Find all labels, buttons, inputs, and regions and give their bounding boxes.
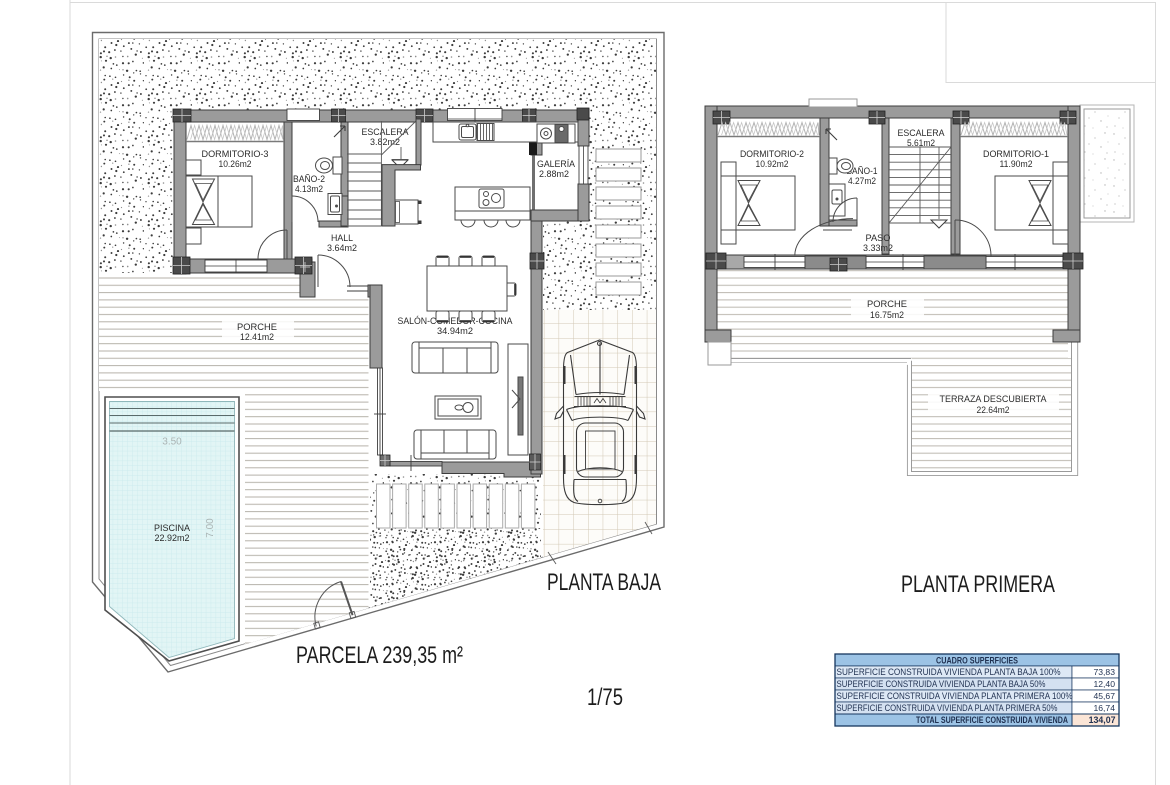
svg-text:12,40: 12,40 <box>1093 679 1115 689</box>
svg-text:22.92m2: 22.92m2 <box>155 533 190 543</box>
svg-text:SUPERFICIE CONSTRUIDA VIVIENDA: SUPERFICIE CONSTRUIDA VIVIENDA PLANTA PR… <box>837 691 1073 701</box>
svg-text:134,07: 134,07 <box>1089 715 1116 725</box>
svg-text:10.92m2: 10.92m2 <box>756 159 789 169</box>
svg-text:73,83: 73,83 <box>1093 667 1115 677</box>
svg-text:22.64m2: 22.64m2 <box>977 405 1010 415</box>
svg-text:3.33m2: 3.33m2 <box>863 243 893 253</box>
svg-text:SUPERFICIE CONSTRUIDA VIVIENDA: SUPERFICIE CONSTRUIDA VIVIENDA PLANTA PR… <box>837 703 1058 713</box>
svg-text:PORCHE: PORCHE <box>867 299 907 310</box>
svg-text:11.90m2: 11.90m2 <box>1000 159 1033 169</box>
svg-text:16.75m2: 16.75m2 <box>870 310 904 320</box>
svg-text:2.88m2: 2.88m2 <box>539 169 569 179</box>
svg-text:7.00: 7.00 <box>205 518 216 538</box>
svg-text:16,74: 16,74 <box>1093 703 1115 713</box>
svg-text:34.94m2: 34.94m2 <box>437 326 473 336</box>
svg-text:3.50: 3.50 <box>162 437 182 448</box>
svg-text:45,67: 45,67 <box>1093 691 1115 701</box>
svg-text:3.82m2: 3.82m2 <box>370 137 400 147</box>
svg-text:10.26m2: 10.26m2 <box>219 159 252 169</box>
svg-text:12.41m2: 12.41m2 <box>240 332 274 342</box>
svg-text:1/75: 1/75 <box>587 684 623 711</box>
svg-text:PLANTA PRIMERA: PLANTA PRIMERA <box>901 571 1055 598</box>
svg-text:3.64m2: 3.64m2 <box>327 243 357 253</box>
svg-text:4.13m2: 4.13m2 <box>295 184 323 194</box>
svg-text:4.27m2: 4.27m2 <box>848 176 876 186</box>
svg-text:CUADRO SUPERFICIES: CUADRO SUPERFICIES <box>936 656 1018 666</box>
svg-text:TOTAL SUPERFICIE CONSTRUIDA VI: TOTAL SUPERFICIE CONSTRUIDA VIVIENDA <box>916 715 1069 725</box>
svg-text:PLANTA BAJA: PLANTA BAJA <box>547 569 661 596</box>
svg-text:5.61m2: 5.61m2 <box>907 138 935 148</box>
svg-text:SUPERFICIE CONSTRUIDA VIVIENDA: SUPERFICIE CONSTRUIDA VIVIENDA PLANTA BA… <box>837 667 1061 677</box>
svg-text:SUPERFICIE CONSTRUIDA VIVIENDA: SUPERFICIE CONSTRUIDA VIVIENDA PLANTA BA… <box>837 679 1046 689</box>
svg-text:TERRAZA DESCUBIERTA: TERRAZA DESCUBIERTA <box>940 394 1048 405</box>
svg-text:PARCELA 239,35 m²: PARCELA 239,35 m² <box>296 642 463 669</box>
